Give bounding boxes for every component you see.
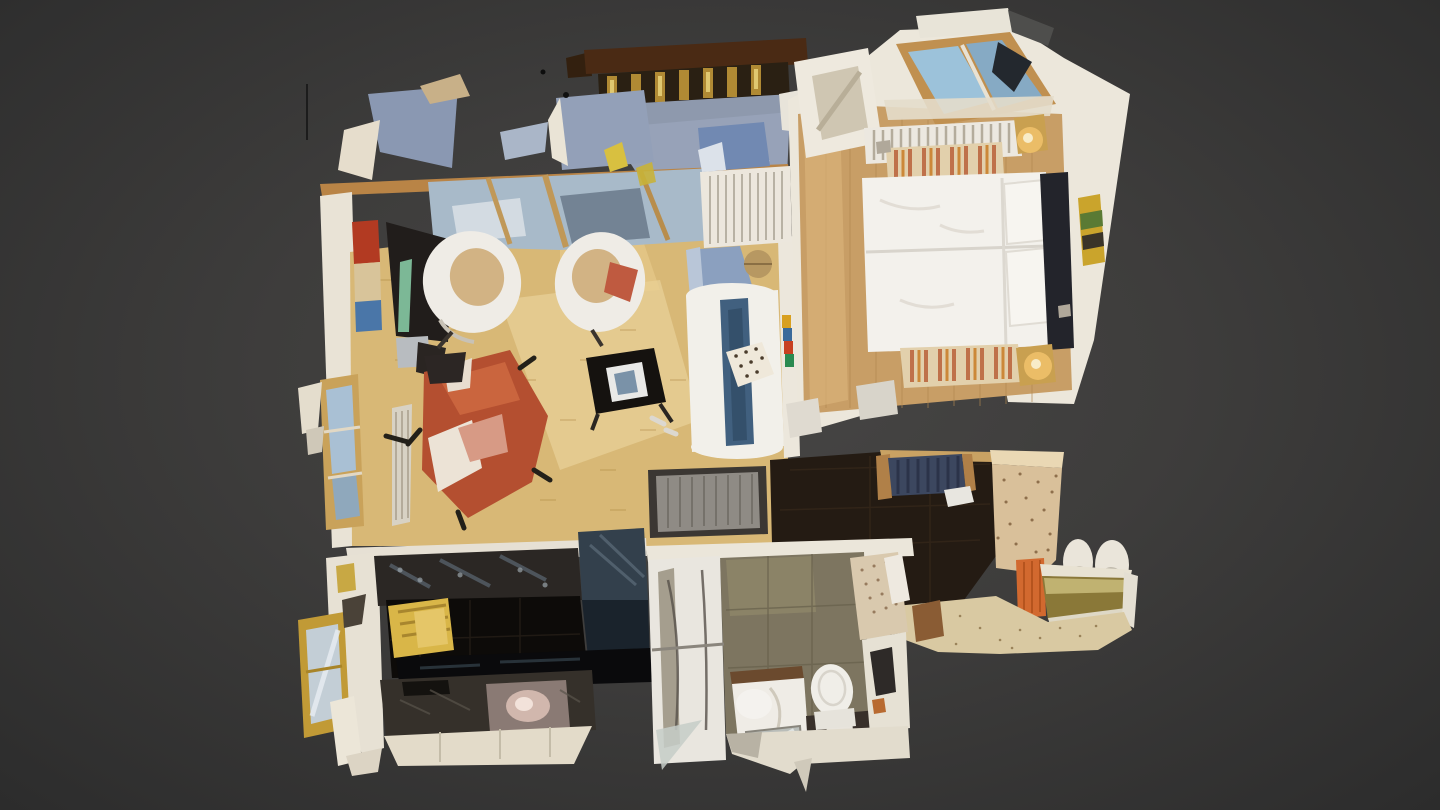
dollhouse-canvas[interactable] xyxy=(0,0,1440,810)
doormat-ribs xyxy=(898,456,958,494)
bath-fragment-point xyxy=(794,758,812,792)
wall-art-tiny-3 xyxy=(784,341,793,354)
wall-frame-small xyxy=(876,140,891,154)
wall-fragment-left xyxy=(338,120,380,180)
cork-wall xyxy=(992,464,1062,574)
gray-doormat xyxy=(656,472,760,532)
wall-art-tiny-4 xyxy=(785,354,794,367)
sink-towel xyxy=(736,689,772,719)
bed-pillow-1 xyxy=(1004,180,1047,244)
lamp-core-top xyxy=(1023,133,1033,143)
artifact-left-1 xyxy=(298,382,322,434)
wood-fragment-top xyxy=(420,74,470,104)
artifact-dot-2 xyxy=(541,70,546,75)
lamp-core-bottom xyxy=(1031,359,1041,369)
floor-fragment-1 xyxy=(786,398,822,438)
coffee-table-photo xyxy=(614,370,638,395)
olive-wall-sheen xyxy=(1044,578,1128,594)
bed-pillow-2 xyxy=(1006,248,1049,326)
sink-cutout xyxy=(402,680,450,696)
artifact-dot-1 xyxy=(563,92,569,98)
yellow-chair-seat xyxy=(414,608,448,648)
entry-wood-bit xyxy=(912,600,944,642)
wall-frame-small-2 xyxy=(1058,304,1071,318)
sofa-dark-arm xyxy=(424,352,466,384)
roof-fragment-small xyxy=(500,122,548,160)
oven-glow-core xyxy=(515,697,533,711)
wall-art-tiny-1 xyxy=(782,315,791,328)
wall-artwork-mid xyxy=(354,262,381,302)
lr-radiator xyxy=(700,166,792,248)
left-window-glass-2 xyxy=(332,474,360,520)
floor-fragment-2 xyxy=(856,380,898,420)
bath-bottom-shade xyxy=(726,732,762,758)
roof-fragment-mid xyxy=(556,90,654,170)
bath-wall-orange-bit xyxy=(872,698,886,714)
wall-artwork-blue xyxy=(355,300,382,332)
dollhouse-viewer xyxy=(0,0,1440,810)
wall-art-tiny-2 xyxy=(783,328,792,341)
artifact-left-2 xyxy=(306,426,324,455)
wall-artwork-red xyxy=(352,220,380,264)
kitchen-wall-art xyxy=(336,563,356,593)
